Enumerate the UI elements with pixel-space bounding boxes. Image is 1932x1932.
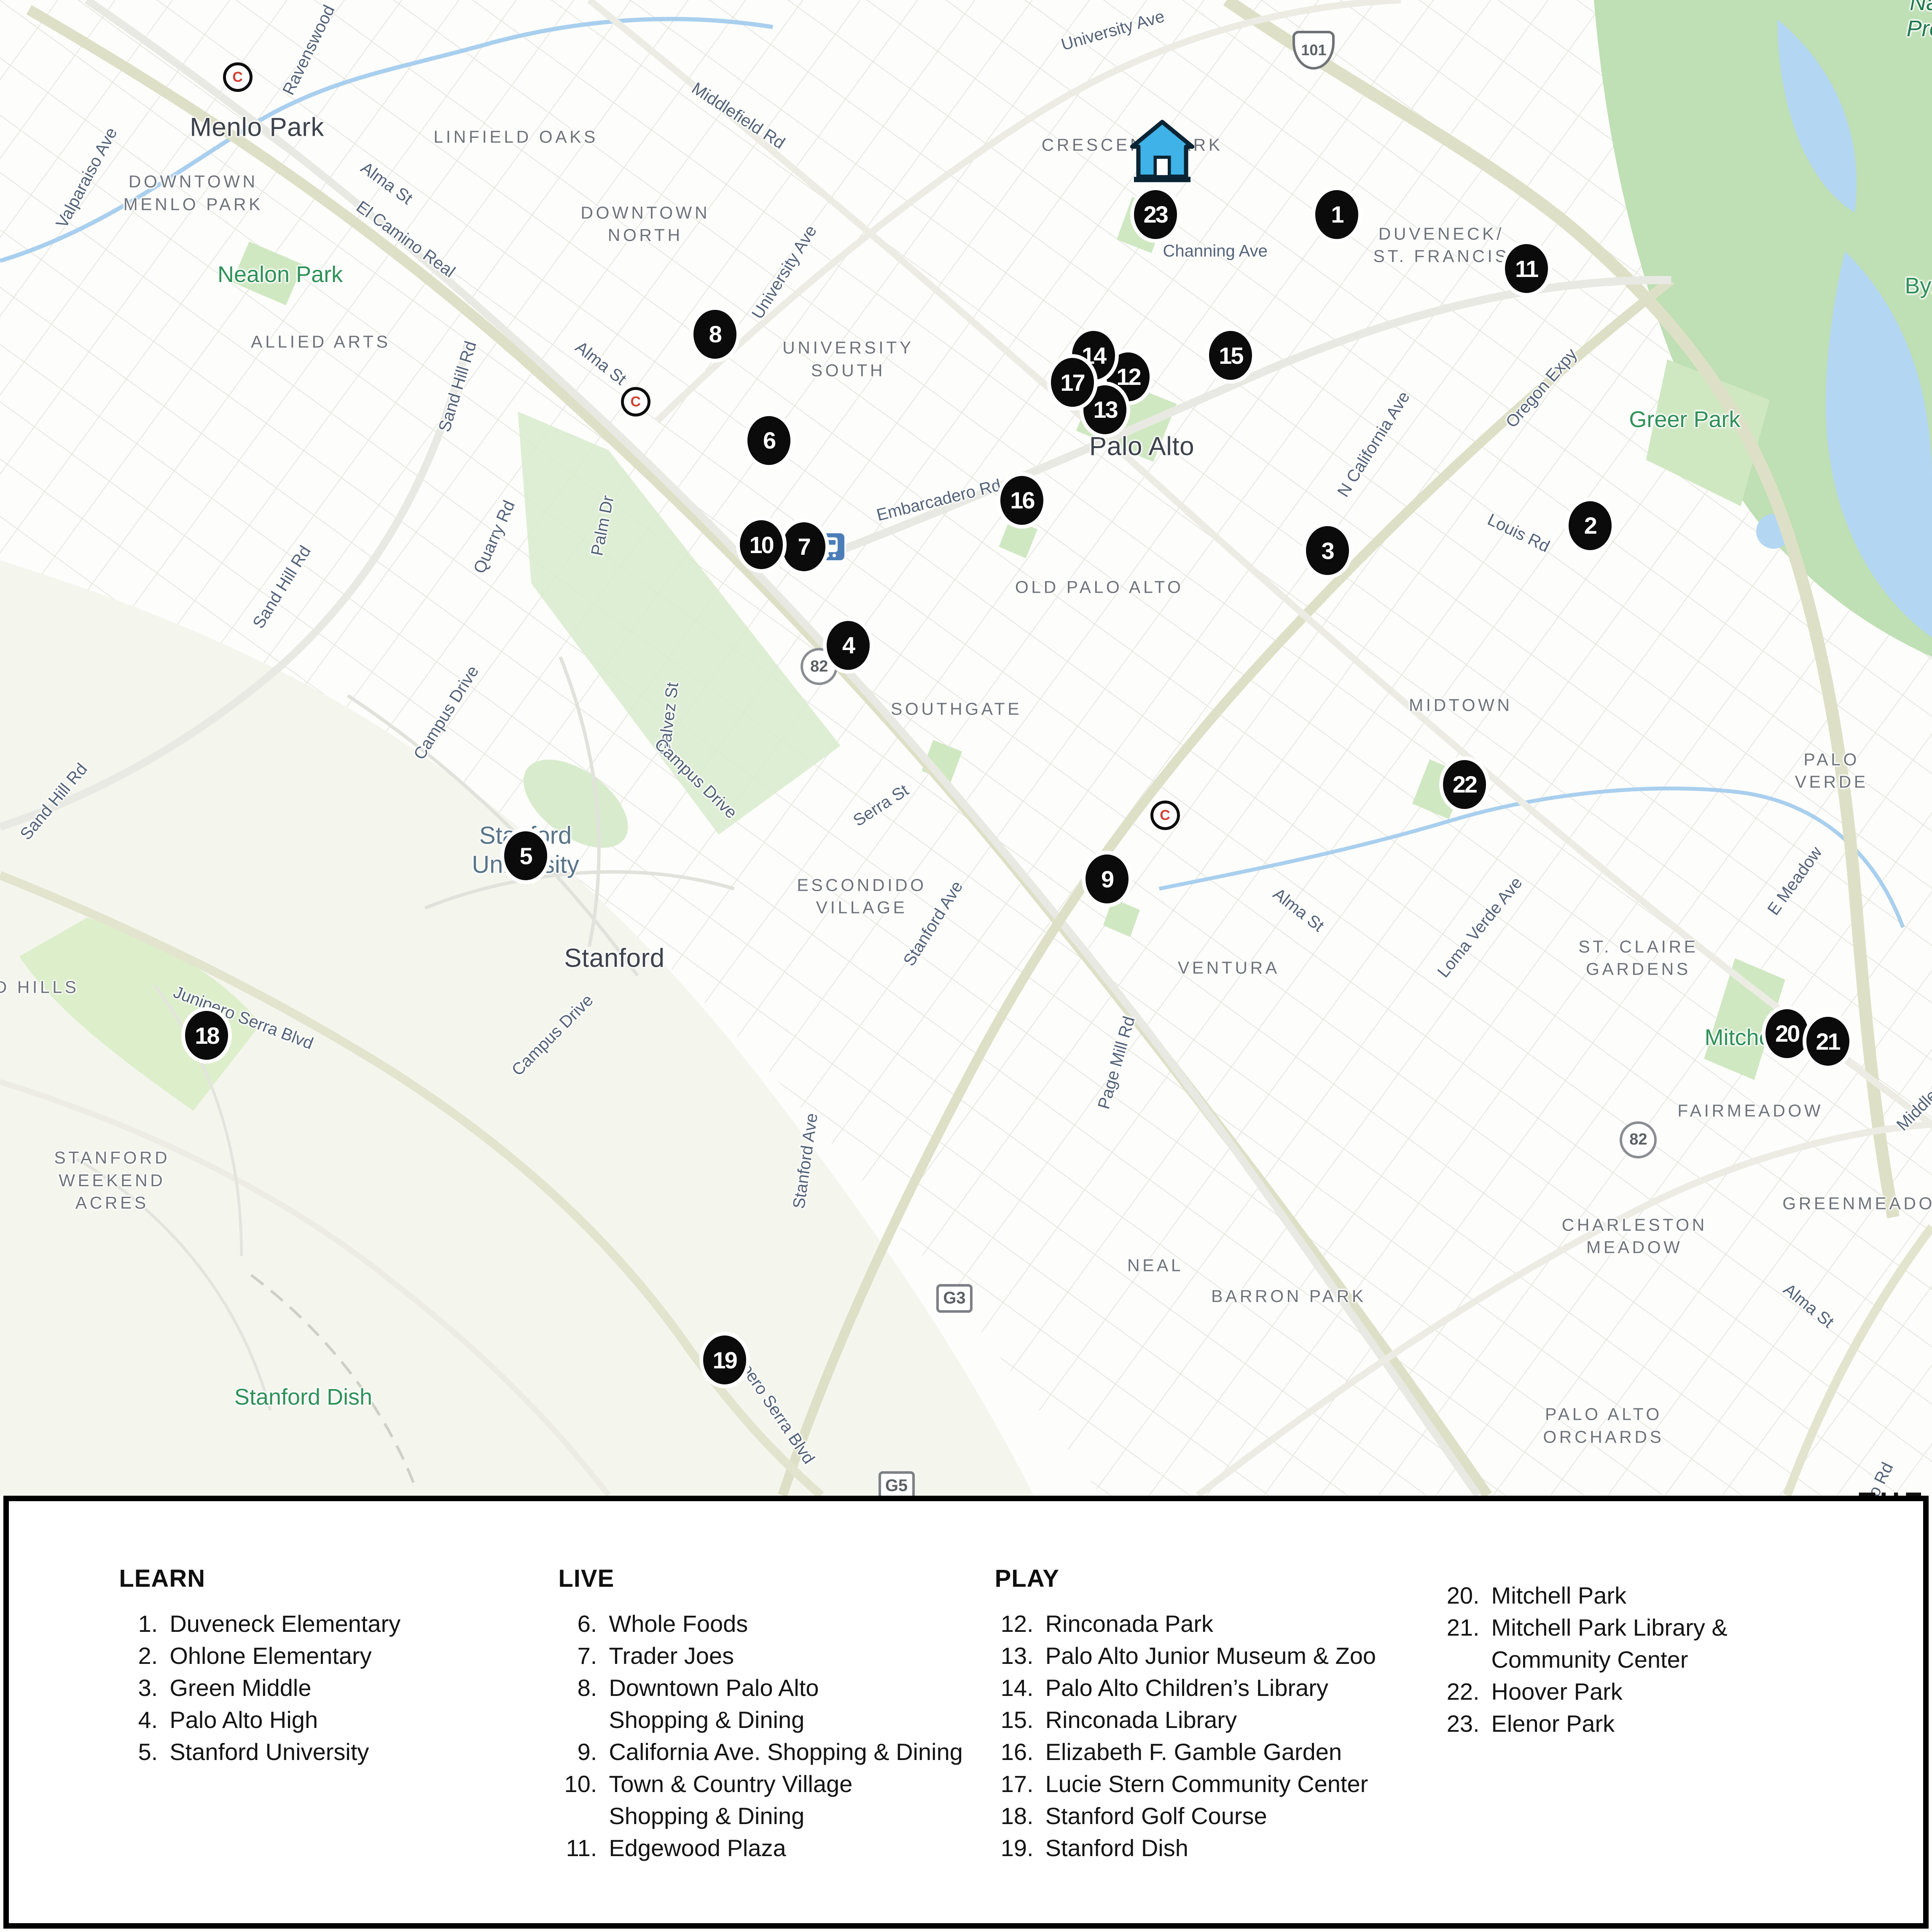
street-label: Oregon Expy	[1502, 345, 1581, 432]
street-label: Loma Verde Ave	[1434, 873, 1526, 981]
legend-item-label: Hoover Park	[1491, 1676, 1623, 1708]
street-label: Quarry Rd	[470, 498, 519, 577]
city-label: Stanford	[564, 943, 664, 973]
legend-item: 8.Downtown Palo Alto Shopping & Dining	[558, 1672, 963, 1736]
legend-item-label: Rinconada Library	[1045, 1704, 1237, 1736]
legend-panel: LEARN1.Duveneck Elementary2.Ohlone Eleme…	[3, 1496, 1929, 1929]
legend-item: 2.Ohlone Elementary	[119, 1640, 400, 1672]
legend-item: 3.Green Middle	[119, 1672, 400, 1704]
neighborhood-label: ALLIED ARTS	[251, 331, 390, 353]
map-marker-3: 3	[1302, 522, 1353, 579]
marker-number: 18	[195, 1022, 218, 1049]
legend-item-number: 23.	[1441, 1708, 1480, 1740]
map-marker-5: 5	[500, 828, 551, 884]
legend-item-label: Downtown Palo Alto Shopping & Dining	[609, 1672, 819, 1736]
map-marker-16: 16	[997, 472, 1047, 529]
caltrain-station-icon: C	[621, 387, 650, 416]
legend-item-label: Stanford University	[169, 1736, 369, 1768]
legend-item: 5.Stanford University	[119, 1736, 400, 1768]
street-label: Sand Hill Rd	[435, 339, 481, 434]
street-label: Sand Hill Rd	[249, 543, 315, 632]
legend-item-label: Lucie Stern Community Center	[1045, 1768, 1368, 1800]
neighborhood-label: PALO VERDE	[1782, 748, 1882, 793]
street-label: Sand Hill Rd	[17, 760, 91, 844]
legend-item-number: 6.	[558, 1608, 597, 1640]
legend-item-number: 16.	[995, 1736, 1034, 1768]
park-label: Greer Park	[1629, 406, 1740, 433]
street-label: Channing Ave	[1163, 242, 1268, 261]
neighborhood-label: FAIRMEADOW	[1677, 1100, 1823, 1122]
legend-item-number: 17.	[995, 1768, 1034, 1800]
map-marker-4: 4	[823, 617, 873, 674]
legend-item-label: Duveneck Elementary	[169, 1608, 400, 1640]
map-marker-10: 10	[736, 516, 787, 573]
relocation-map-page: Menlo ParkPalo AltoStanfordStanford Univ…	[0, 0, 1932, 1932]
legend-item-number: 21.	[1441, 1612, 1480, 1644]
map-marker-2: 2	[1565, 497, 1615, 554]
legend-item-number: 9.	[558, 1736, 597, 1768]
legend-header: PLAY	[995, 1564, 1376, 1593]
legend-item: 7.Trader Joes	[558, 1640, 963, 1672]
legend-column-learn: LEARN1.Duveneck Elementary2.Ohlone Eleme…	[119, 1564, 400, 1768]
legend-item: 21.Mitchell Park Library & Community Cen…	[1441, 1612, 1728, 1676]
legend-item-label: Stanford Golf Course	[1045, 1800, 1267, 1832]
neighborhood-label: VENTURA	[1178, 957, 1280, 979]
legend-item-label: Palo Alto High	[169, 1704, 318, 1736]
highway-shield: 101	[1292, 31, 1335, 70]
park-label: Na Pre	[1907, 0, 1932, 42]
marker-number: 8	[709, 320, 721, 348]
legend-item: 22.Hoover Park	[1441, 1676, 1728, 1708]
street-label: Middlefield	[1893, 1064, 1932, 1134]
legend-column-live: LIVE6.Whole Foods7.Trader Joes8.Downtown…	[558, 1564, 963, 1864]
street-label: University Ave	[748, 222, 821, 322]
map-marker-15: 15	[1205, 327, 1256, 384]
street-label: E Meadow	[1764, 843, 1826, 919]
legend-item-label: Stanford Dish	[1045, 1832, 1188, 1864]
legend-item: 13.Palo Alto Junior Museum & Zoo	[995, 1640, 1376, 1672]
neighborhood-label: OLD PALO ALTO	[1015, 576, 1184, 599]
street-label: Stanford Ave	[790, 1112, 822, 1210]
legend-item-number: 7.	[558, 1640, 597, 1672]
park-label: Byxb	[1905, 273, 1932, 299]
marker-number: 13	[1093, 396, 1117, 423]
marker-number: 15	[1219, 342, 1242, 369]
caltrain-station-icon: C	[223, 62, 253, 92]
street-label: Palm Dr	[588, 494, 618, 557]
marker-number: 3	[1321, 537, 1333, 564]
legend-item: 9.California Ave. Shopping & Dining	[558, 1736, 963, 1768]
map-marker-23: 23	[1130, 186, 1181, 243]
street-label: Serra St	[850, 781, 912, 830]
neighborhood-label: ESCONDIDO VILLAGE	[797, 874, 926, 919]
street-label: El Camino Real	[353, 197, 459, 282]
legend-item-number: 10.	[558, 1768, 597, 1800]
park-label: Nealon Park	[218, 261, 343, 288]
legend-item: 4.Palo Alto High	[119, 1704, 400, 1736]
marker-number: 20	[1775, 1020, 1799, 1047]
legend-item-number: 13.	[995, 1640, 1034, 1672]
legend-list: 20.Mitchell Park21.Mitchell Park Library…	[1441, 1580, 1728, 1740]
house-glyph	[1125, 115, 1199, 189]
legend-list: 1.Duveneck Elementary2.Ohlone Elementary…	[119, 1608, 400, 1768]
legend-item-label: Palo Alto Junior Museum & Zoo	[1045, 1640, 1376, 1672]
legend-item: 14.Palo Alto Children’s Library	[995, 1672, 1376, 1704]
marker-number: 22	[1453, 771, 1476, 798]
legend-item-number: 14.	[995, 1672, 1034, 1704]
marker-number: 1	[1331, 201, 1343, 228]
neighborhood-label: STANFORD WEEKEND ACRES	[54, 1147, 170, 1214]
legend-item: 17.Lucie Stern Community Center	[995, 1768, 1376, 1800]
marker-number: 2	[1584, 512, 1596, 539]
legend-item-label: Ohlone Elementary	[169, 1640, 371, 1672]
legend-column-play-cont: 20.Mitchell Park21.Mitchell Park Library…	[1441, 1564, 1728, 1740]
legend-item-number: 11.	[558, 1832, 597, 1864]
marker-number: 23	[1143, 201, 1167, 228]
neighborhood-label: PALO ALTO ORCHARDS	[1543, 1403, 1664, 1448]
legend-item: 20.Mitchell Park	[1441, 1580, 1728, 1612]
legend-item: 6.Whole Foods	[558, 1608, 963, 1640]
marker-number: 10	[750, 531, 773, 559]
map-marker-1: 1	[1311, 186, 1362, 243]
map-marker-11: 11	[1501, 240, 1552, 297]
neighborhood-label: BARRON PARK	[1211, 1285, 1366, 1308]
marker-number: 11	[1515, 255, 1537, 282]
legend-item-label: Elizabeth F. Gamble Garden	[1045, 1736, 1342, 1768]
neighborhood-label: LINFIELD OAKS	[433, 126, 598, 148]
legend-item: 10.Town & Country Village Shopping & Din…	[558, 1768, 963, 1832]
neighborhood-label: ST. CLAIRE GARDENS	[1578, 936, 1698, 981]
city-label: Menlo Park	[190, 113, 324, 142]
map-marker-17: 17	[1047, 354, 1098, 411]
marker-number: 4	[842, 631, 854, 659]
map-marker-6: 6	[744, 412, 794, 469]
home-icon	[1125, 115, 1199, 189]
highway-shield: G3	[936, 1284, 973, 1313]
street-label: Campus Drive	[410, 663, 482, 763]
legend-item-number: 4.	[119, 1704, 158, 1736]
neighborhood-label: DOWNTOWN MENLO PARK	[124, 171, 263, 216]
legend-item-number: 2.	[119, 1640, 158, 1672]
legend-item-number: 19.	[995, 1832, 1034, 1864]
street-label: Embarcadero Rd	[875, 476, 1003, 525]
legend-item-number: 15.	[995, 1704, 1034, 1736]
legend-item-label: Palo Alto Children’s Library	[1045, 1672, 1328, 1704]
street-label: Louis Rd	[1484, 510, 1553, 556]
marker-number: 17	[1060, 369, 1084, 396]
legend-header: LEARN	[119, 1564, 400, 1593]
legend-header: LIVE	[558, 1564, 963, 1593]
neighborhood-label: DUVENECK/ ST. FRANCIS	[1373, 223, 1510, 268]
marker-number: 7	[798, 533, 809, 560]
legend-item-label: Trader Joes	[609, 1640, 734, 1672]
neighborhood-label: D HILLS	[0, 976, 79, 998]
street-label: Campus Drive	[650, 735, 741, 822]
legend-item-number: 22.	[1441, 1676, 1480, 1708]
map-marker-22: 22	[1439, 756, 1490, 813]
legend-item-label: Mitchell Park Library & Community Center	[1491, 1612, 1728, 1676]
legend-item-number: 1.	[119, 1608, 158, 1640]
legend-item-label: Town & Country Village Shopping & Dining	[609, 1768, 852, 1832]
legend-item-number: 20.	[1441, 1580, 1480, 1612]
street-label: Middlefield Rd	[688, 79, 788, 153]
map-marker-9: 9	[1082, 851, 1132, 907]
park-label: Stanford Dish	[234, 1384, 372, 1410]
caltrain-station-icon: C	[1150, 801, 1180, 830]
neighborhood-label: SOUTHGATE	[891, 698, 1022, 720]
legend-item-label: Whole Foods	[609, 1608, 748, 1640]
legend-item: 18.Stanford Golf Course	[995, 1800, 1376, 1832]
street-label: Alma St	[572, 338, 630, 389]
highway-shield: 82	[1620, 1121, 1657, 1158]
neighborhood-label: DOWNTOWN NORTH	[580, 202, 710, 247]
marker-number: 21	[1816, 1028, 1839, 1055]
legend-item: 15.Rinconada Library	[995, 1704, 1376, 1736]
map-marker-18: 18	[181, 1007, 232, 1064]
marker-number: 16	[1010, 486, 1034, 514]
legend-item: 11.Edgewood Plaza	[558, 1832, 963, 1864]
legend-item-number: 12.	[995, 1608, 1034, 1640]
legend-item-label: Rinconada Park	[1045, 1608, 1213, 1640]
street-label: Campus Drive	[508, 991, 597, 1080]
street-label: Page Mill Rd	[1094, 1014, 1139, 1111]
neighborhood-label: CHARLESTON MEADOW	[1562, 1214, 1707, 1259]
legend-item-label: Green Middle	[169, 1672, 311, 1704]
legend-item: 12.Rinconada Park	[995, 1608, 1376, 1640]
legend-item: 1.Duveneck Elementary	[119, 1608, 400, 1640]
legend-item-label: Edgewood Plaza	[609, 1832, 786, 1864]
legend-item: 23.Elenor Park	[1441, 1708, 1728, 1740]
neighborhood-label: UNIVERSITY SOUTH	[782, 337, 914, 382]
neighborhood-label: GREENMEADOW	[1782, 1193, 1932, 1215]
street-label: Alma St	[1779, 1280, 1837, 1332]
legend-list: 6.Whole Foods7.Trader Joes8.Downtown Pal…	[558, 1608, 963, 1864]
street-label: University Ave	[1059, 7, 1166, 55]
legend-item-label: Mitchell Park	[1491, 1580, 1627, 1612]
legend-item-number: 3.	[119, 1672, 158, 1704]
street-label: N California Ave	[1334, 388, 1414, 500]
map-marker-8: 8	[690, 306, 740, 363]
map-marker-21: 21	[1803, 1013, 1853, 1069]
street-label: Alma St	[1269, 884, 1327, 936]
legend-item-number: 18.	[995, 1800, 1034, 1832]
street-label: Ravenswood	[279, 2, 339, 98]
neighborhood-label: NEAL	[1127, 1254, 1183, 1276]
street-label: Valparaiso Ave	[53, 124, 121, 231]
legend-item-number: 8.	[558, 1672, 597, 1704]
marker-number: 9	[1101, 865, 1113, 893]
legend-column-play: PLAY12.Rinconada Park13.Palo Alto Junior…	[995, 1564, 1376, 1864]
legend-item-label: California Ave. Shopping & Dining	[609, 1736, 963, 1768]
legend-item-label: Elenor Park	[1491, 1708, 1615, 1740]
legend-item: 19.Stanford Dish	[995, 1832, 1376, 1864]
map-marker-19: 19	[699, 1332, 750, 1388]
marker-number: 5	[519, 842, 531, 870]
marker-number: 19	[712, 1346, 736, 1374]
legend-list: 12.Rinconada Park13.Palo Alto Junior Mus…	[995, 1608, 1376, 1864]
legend-item: 16.Elizabeth F. Gamble Garden	[995, 1736, 1376, 1768]
neighborhood-label: MIDTOWN	[1409, 694, 1513, 716]
legend-item-number: 5.	[119, 1736, 158, 1768]
marker-number: 6	[763, 427, 775, 454]
